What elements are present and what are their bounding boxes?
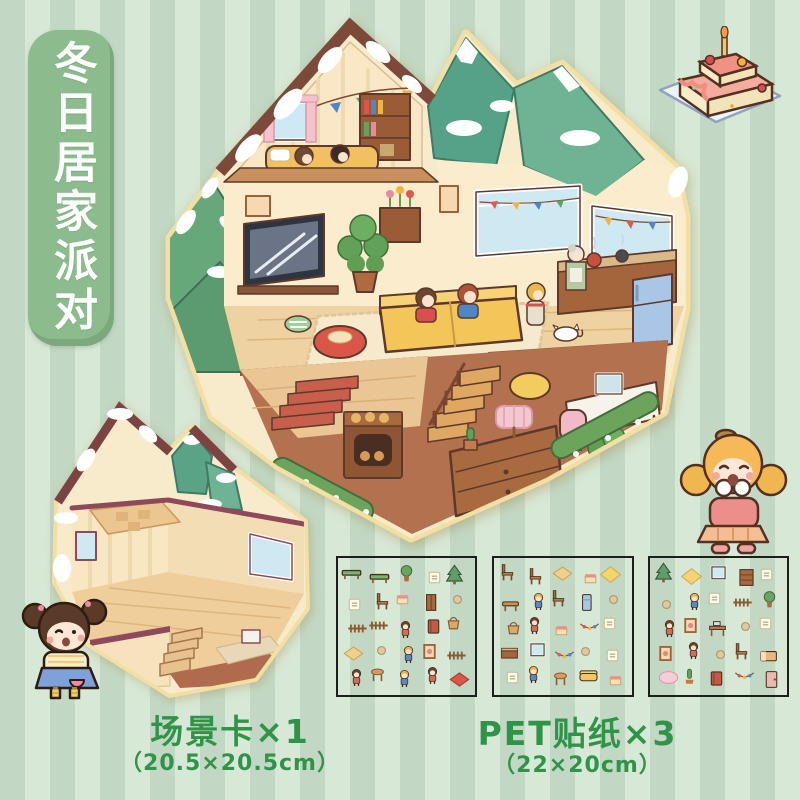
- title-banner: 冬日居家派对: [28, 30, 114, 346]
- pet-sticker-label: PET贴纸×3: [420, 716, 735, 752]
- sticker-garland: [554, 644, 575, 665]
- sticker-note: [424, 567, 445, 588]
- sticker-book: [423, 616, 444, 637]
- sticker-snack: [392, 588, 413, 609]
- scene-card-size: （20.5×20.5cm）: [70, 750, 390, 779]
- sticker-tree: [444, 564, 465, 585]
- sticker-wardrobe: [420, 592, 441, 613]
- caption-scene-card: 场景卡×1 （20.5×20.5cm）: [70, 714, 390, 779]
- sticker-note: [755, 613, 776, 634]
- sticker-plant: [396, 563, 417, 584]
- sticker-plant: [759, 589, 780, 610]
- sticker-fence: [368, 615, 389, 636]
- sticker-misc: [575, 641, 596, 662]
- sticker-garland: [734, 665, 755, 686]
- sticker-kid: [524, 615, 545, 636]
- sticker-misc: [656, 594, 677, 615]
- sticker-snack: [580, 567, 601, 588]
- sticker-bed: [758, 645, 779, 666]
- sticker-note: [344, 594, 365, 615]
- sticker-frame: [680, 615, 701, 636]
- sticker-basket: [443, 613, 464, 634]
- sticker-sofa: [578, 665, 599, 686]
- sticker-shelf: [736, 567, 757, 588]
- sticker-note: [704, 588, 725, 609]
- cake-sticker: [650, 26, 788, 134]
- sticker-kid: [395, 619, 416, 640]
- sticker-desk: [707, 619, 728, 640]
- sticker-sheet-3: [648, 556, 789, 697]
- sticker-stool: [367, 664, 388, 685]
- sticker-fridge: [576, 592, 597, 613]
- sticker-bench: [341, 562, 362, 583]
- sticker-stool: [550, 668, 571, 689]
- sticker-frame: [419, 641, 440, 662]
- sticker-kidb: [523, 664, 544, 685]
- sticker-kidb: [394, 668, 415, 689]
- sticker-kidb: [398, 644, 419, 665]
- sticker-cactus: [679, 664, 700, 685]
- sticker-note: [756, 564, 777, 585]
- sticker-kid: [346, 667, 367, 688]
- character-girl-right: [676, 416, 791, 556]
- sticker-misc: [735, 616, 756, 637]
- sticker-book: [706, 668, 727, 689]
- character-girl-left: [14, 590, 120, 702]
- sticker-fence: [446, 645, 467, 666]
- sticker-misc: [603, 589, 624, 610]
- sticker-chair: [525, 566, 546, 587]
- sticker-misc: [710, 644, 731, 665]
- sticker-chair: [497, 562, 518, 583]
- sticker-misc: [371, 640, 392, 661]
- sticker-sheet-2: [492, 556, 634, 697]
- sticker-kid: [683, 640, 704, 661]
- sticker-table: [500, 594, 521, 615]
- sticker-misc: [447, 589, 468, 610]
- sticker-garland: [579, 616, 600, 637]
- sticker-note: [602, 645, 623, 666]
- scene-card-label: 场景卡×1: [70, 714, 390, 750]
- sticker-note: [502, 667, 523, 688]
- sticker-chair: [731, 641, 752, 662]
- sticker-rugpink: [658, 667, 679, 688]
- sticker-kidb: [528, 591, 549, 612]
- sticker-sheet-1: [336, 556, 477, 697]
- sticker-bench: [369, 566, 390, 587]
- sticker-door: [761, 669, 782, 690]
- sticker-rugred: [449, 669, 470, 690]
- sticker-tree: [653, 562, 674, 583]
- sticker-rugyellow: [600, 564, 621, 585]
- sticker-window: [527, 640, 548, 661]
- sticker-counter: [499, 643, 520, 664]
- title-text: 冬日居家派对: [49, 40, 93, 336]
- sticker-frame: [655, 643, 676, 664]
- sticker-rugyellow: [681, 566, 702, 587]
- pet-sticker-size: （22×20cm）: [420, 752, 735, 781]
- sticker-basket: [503, 618, 524, 639]
- sticker-chair: [372, 591, 393, 612]
- sticker-snack: [605, 669, 626, 690]
- sticker-kidb: [684, 591, 705, 612]
- sticker-kid: [659, 618, 680, 639]
- sticker-rug: [343, 643, 364, 664]
- sticker-kid: [422, 665, 443, 686]
- sticker-fence: [732, 592, 753, 613]
- sticker-chair: [548, 588, 569, 609]
- sticker-note: [599, 613, 620, 634]
- sticker-snack: [551, 619, 572, 640]
- sticker-fence: [347, 618, 368, 639]
- product-image: 冬日居家派对: [0, 0, 800, 800]
- sticker-window: [708, 563, 729, 584]
- sticker-rug: [552, 563, 573, 584]
- caption-pet-sticker: PET贴纸×3 （22×20cm）: [420, 716, 735, 781]
